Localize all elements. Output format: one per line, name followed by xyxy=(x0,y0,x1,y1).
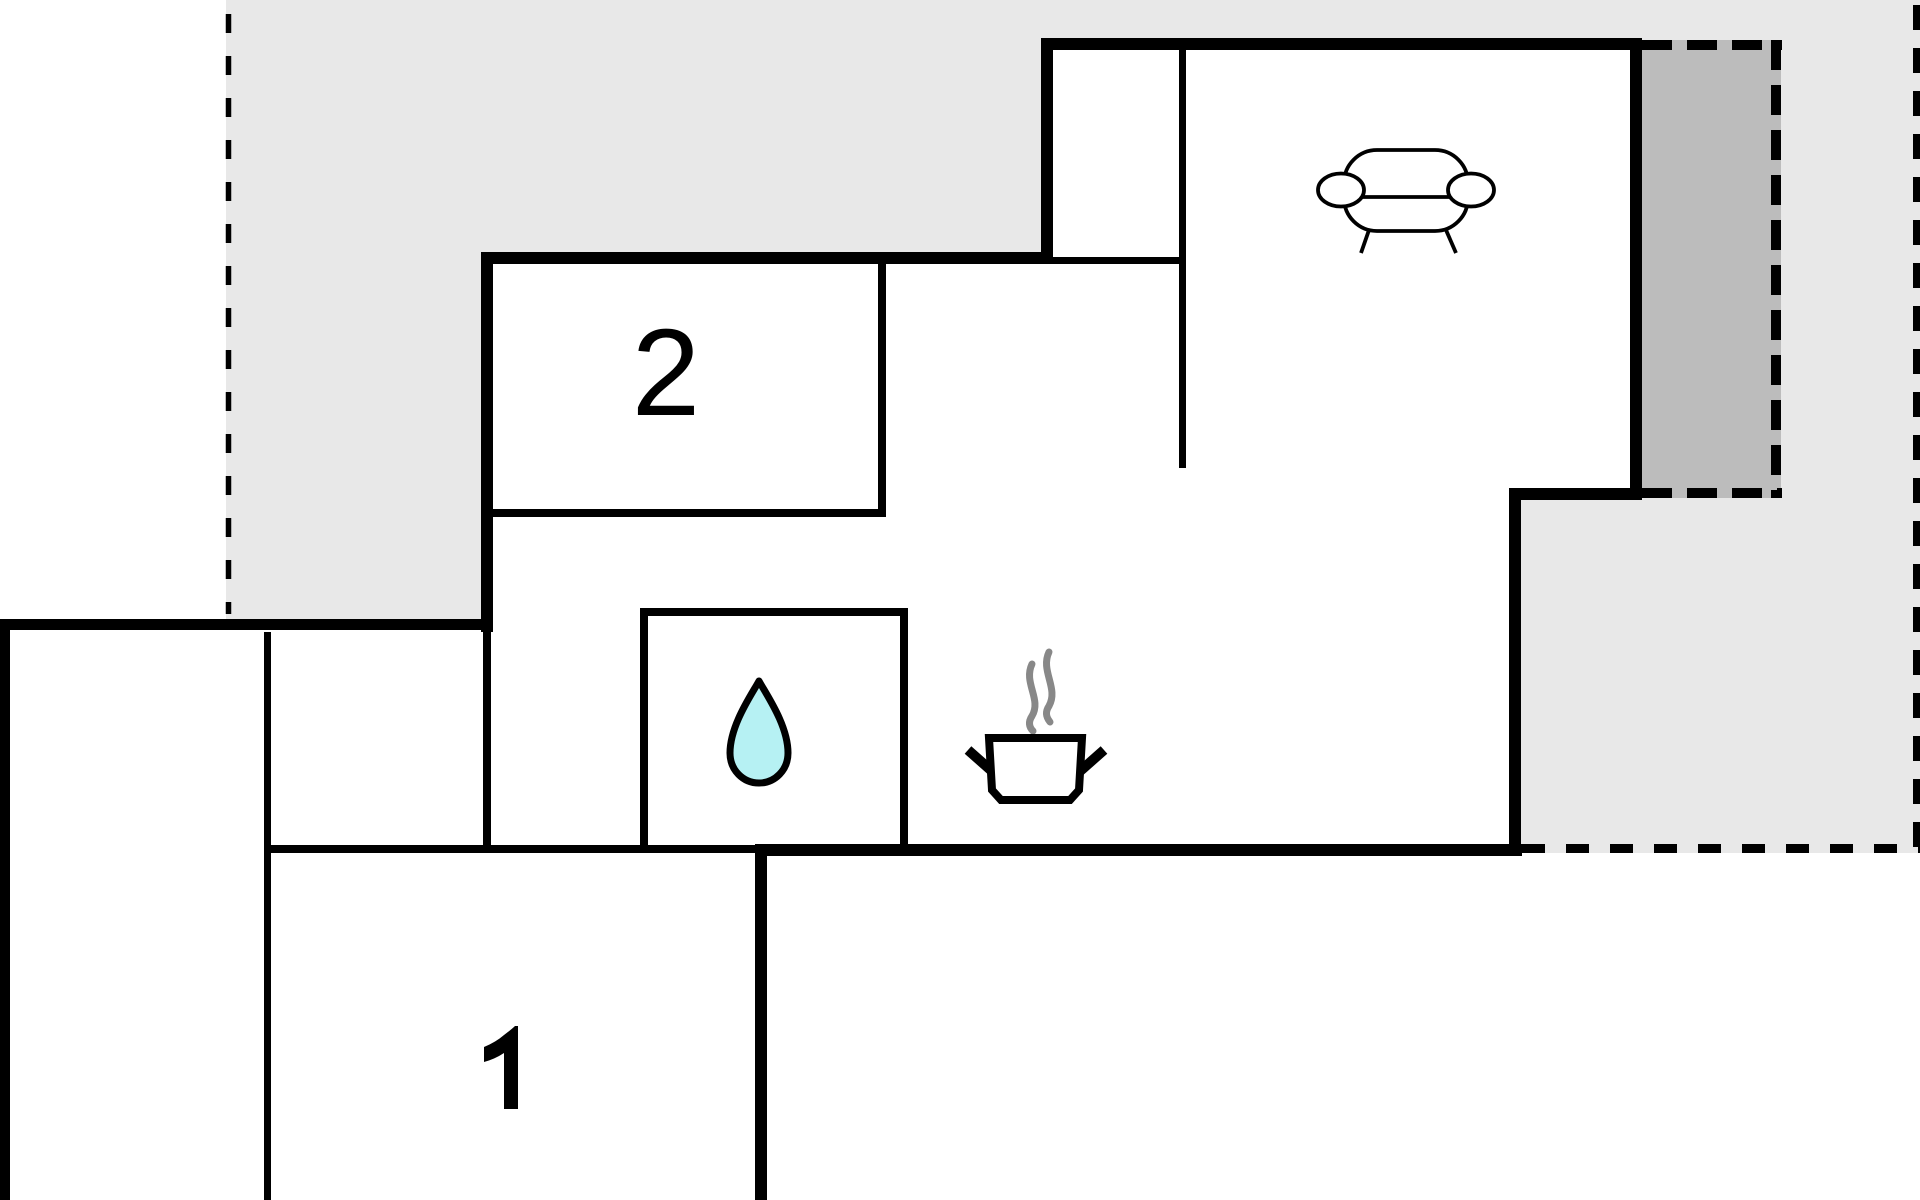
svg-text:2: 2 xyxy=(632,305,700,442)
